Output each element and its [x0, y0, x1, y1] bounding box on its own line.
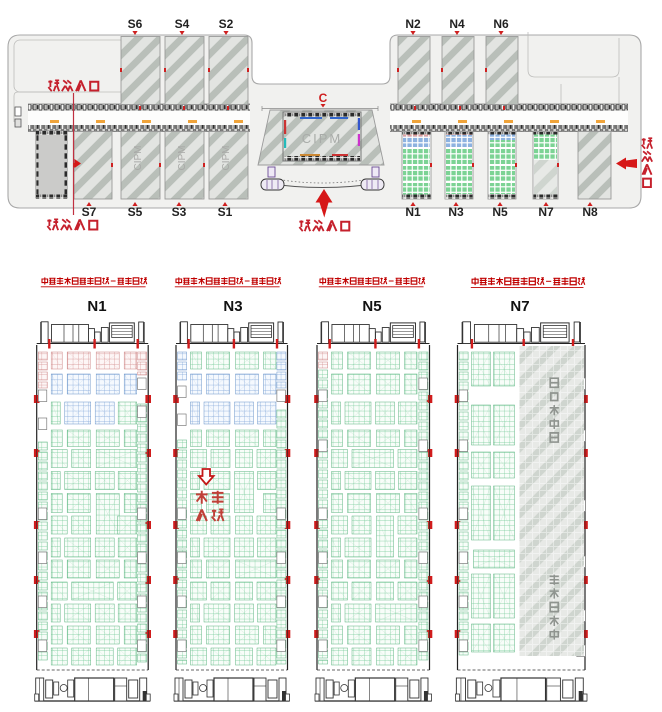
svg-text:N1: N1	[87, 298, 106, 315]
svg-text:N7: N7	[538, 205, 554, 219]
svg-text:N3: N3	[223, 298, 242, 315]
svg-text:CIPM: CIPM	[177, 146, 188, 171]
svg-text:N6: N6	[493, 17, 509, 31]
svg-text:S2: S2	[219, 17, 234, 31]
svg-text:N2: N2	[405, 17, 421, 31]
svg-text:N5: N5	[362, 298, 381, 315]
svg-text:S3: S3	[172, 205, 187, 219]
svg-text:N8: N8	[582, 205, 598, 219]
svg-text:CIPM: CIPM	[302, 131, 343, 146]
svg-text:C: C	[319, 91, 328, 105]
svg-text:N3: N3	[448, 205, 464, 219]
svg-text:S7: S7	[82, 205, 97, 219]
svg-text:S6: S6	[128, 17, 143, 31]
svg-text:S5: S5	[128, 205, 143, 219]
svg-text:N4: N4	[449, 17, 465, 31]
svg-text:S4: S4	[175, 17, 190, 31]
svg-text:CIPM: CIPM	[221, 146, 232, 171]
svg-text:N7: N7	[510, 298, 529, 315]
svg-text:N1: N1	[405, 205, 421, 219]
svg-text:S1: S1	[218, 205, 233, 219]
svg-text:CIPM: CIPM	[133, 146, 144, 171]
svg-text:N5: N5	[492, 205, 508, 219]
